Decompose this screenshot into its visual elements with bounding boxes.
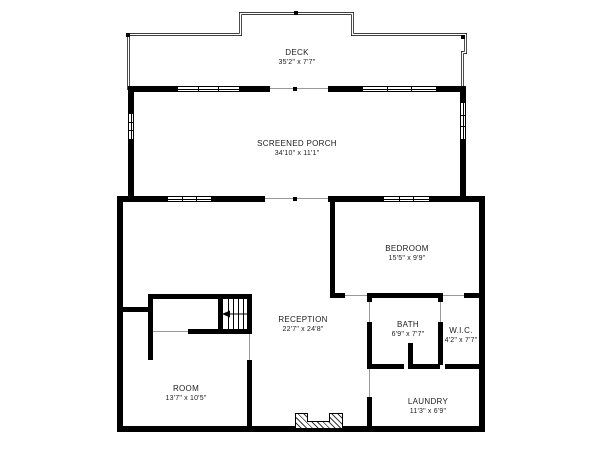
deck-center-tick [294, 11, 298, 15]
stair-step [243, 299, 244, 329]
bedroom-door-opening [345, 295, 367, 296]
room-name: DECK [279, 48, 316, 58]
room-name: BATH [392, 320, 425, 330]
closet-door-opening [153, 331, 188, 332]
room-wall-right [247, 360, 252, 432]
exterior-wall-left [117, 196, 123, 432]
room-label-screened-porch: SCREENED PORCH 34'10" x 11'1" [257, 139, 337, 158]
room-label-deck: DECK 35'2" x 7'7" [279, 48, 316, 67]
laundry-wall-top-segment [413, 364, 440, 369]
laundry-wall-top-segment [445, 364, 479, 369]
room-dims: 13'7" x 10'5" [166, 394, 207, 403]
bedroom-wall-foot [330, 293, 345, 298]
exterior-wall-top-segment [328, 196, 383, 202]
room-dims: 35'2" x 7'7" [279, 58, 316, 67]
stair-step [228, 299, 229, 329]
room-dims: 34'10" x 11'1" [257, 149, 337, 158]
exterior-wall-right [479, 196, 485, 432]
laundry-wall-top-segment [367, 364, 404, 369]
bath-wall-top [367, 293, 443, 298]
room-label-bath: BATH 6'9" x 7'7" [392, 320, 425, 339]
laundry-wall-left [367, 397, 372, 432]
room-label-bedroom: BEDROOM 15'5" x 9'9" [385, 244, 428, 263]
room-label-room: ROOM 13'7" x 10'5" [166, 384, 207, 403]
deck-corner-tick [126, 33, 130, 37]
room-name: W.I.C. [445, 326, 478, 336]
fireplace-hearth [295, 413, 343, 429]
floor-plan-canvas: DECK 35'2" x 7'7" SCREENED PORCH 34'10" … [0, 0, 600, 450]
porch-window [362, 86, 437, 92]
room-dims: 6'9" x 7'7" [392, 330, 425, 339]
exterior-wall-top-segment [430, 196, 485, 202]
wic-wall-top-segment [464, 293, 479, 298]
niche-wall [123, 307, 148, 312]
window [167, 196, 212, 202]
bath-wall-left [367, 322, 372, 368]
closet-wall-top [148, 294, 252, 299]
deck-corner-tick [461, 35, 465, 39]
opening-center-tick [293, 197, 297, 201]
opening-center-tick [293, 87, 297, 91]
room-door-opening [249, 334, 250, 360]
door-opening-to-deck [270, 88, 328, 89]
room-dims: 15'5" x 9'9" [385, 254, 428, 263]
room-label-laundry: LAUNDRY 11'3" x 6'9" [408, 397, 448, 416]
bath-door-opening [369, 302, 370, 322]
room-label-wic: W.I.C. 4'2" x 7'7" [445, 326, 478, 345]
room-name: ROOM [166, 384, 207, 394]
closet-wall-left [148, 294, 153, 360]
fireplace-notch [307, 413, 330, 422]
wic-door-opening [443, 295, 464, 296]
porch-wall-left [128, 86, 134, 196]
stair-step [238, 299, 239, 329]
room-name: LAUNDRY [408, 397, 448, 407]
closet-wall-bottom [188, 329, 252, 334]
porch-wall-top-segment [240, 86, 270, 92]
room-dims: 4'2" x 7'7" [445, 336, 478, 345]
porch-window [177, 86, 240, 92]
room-name: RECEPTION [278, 315, 327, 325]
room-name: BEDROOM [385, 244, 428, 254]
room-dims: 22'7" x 24'8" [278, 325, 327, 334]
bath-wic-divider-wall [438, 322, 443, 365]
porch-wall-top-segment [328, 86, 362, 92]
laundry-door-opening [369, 369, 370, 397]
bedroom-wall-left [330, 202, 335, 293]
porch-wall-top-segment [128, 86, 177, 92]
porch-window-right [460, 102, 466, 140]
stair-divider-wall [218, 294, 223, 334]
exterior-wall-top-segment [117, 196, 167, 202]
room-dims: 11'3" x 6'9" [408, 407, 448, 416]
stair-step [233, 299, 234, 329]
porch-window-left [128, 113, 134, 140]
walls [0, 0, 600, 450]
bedroom-window [383, 196, 430, 202]
bath-wic-door-opening [440, 302, 441, 322]
stair-wall-right [247, 294, 252, 334]
exterior-wall-top-segment [212, 196, 265, 202]
room-label-reception: RECEPTION 22'7" x 24'8" [278, 315, 327, 334]
room-name: SCREENED PORCH [257, 139, 337, 149]
